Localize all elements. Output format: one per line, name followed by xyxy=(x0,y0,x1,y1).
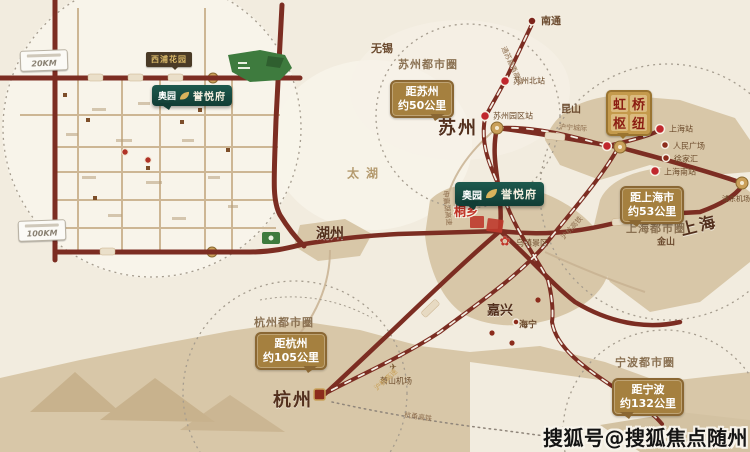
distance-badge-shanghai: 距上海市 约53公里 xyxy=(620,186,684,224)
wuzhen-scenic-label: 乌镇景区 xyxy=(516,238,548,249)
distance-line2: 约132公里 xyxy=(620,397,676,411)
project-name: 誉悦府 xyxy=(193,88,226,103)
leaf-icon xyxy=(485,188,498,200)
hongqiao-hub-badge: 虹 桥 枢 纽 xyxy=(606,90,652,136)
distance-line2: 约105公里 xyxy=(263,351,319,365)
inset-road-badge: 西浦花园 xyxy=(146,52,192,67)
station-shanghai-south-label: 上海南站 xyxy=(664,167,696,178)
sign-text-bar xyxy=(25,223,59,227)
inset-distance-sign-bottom: 100KM xyxy=(18,219,67,242)
distance-line1: 距宁波 xyxy=(620,383,676,397)
sign-distance: 20KM xyxy=(23,58,65,68)
station-renmin-square-label: 人民广场 xyxy=(673,141,705,152)
sign-text-bar xyxy=(27,53,61,57)
watermark-text: 搜狐号@搜狐焦点随州站 xyxy=(543,422,750,452)
distance-badge-suzhou: 距苏州 约50公里 xyxy=(390,80,454,118)
city-haining: 海宁 xyxy=(519,318,537,331)
leaf-icon xyxy=(179,91,190,101)
city-jiaxing: 嘉兴 xyxy=(487,300,513,319)
lake-taihu-label: 太湖 xyxy=(347,165,385,182)
project-brand: 奥园 xyxy=(462,187,482,202)
city-suzhou: 苏州 xyxy=(438,114,478,140)
inset-distance-sign-top: 20KM xyxy=(20,49,69,72)
hongqiao-char: 桥 xyxy=(630,95,647,112)
pudong-airport-label: 浦东机场 xyxy=(722,194,750,204)
badge-pointer xyxy=(628,220,647,234)
hangzhou-marker xyxy=(314,389,325,400)
metro-circle-suzhou-label: 苏州都市圈 xyxy=(398,56,458,72)
rail-label-huning: 沪宁城际 xyxy=(559,122,588,134)
station-suzhou-yuanqu-label: 苏州园区站 xyxy=(493,111,533,122)
station-xujiahui-label: 徐家汇 xyxy=(674,154,698,165)
project-badge-main: 奥园 誉悦府 xyxy=(455,182,544,206)
city-wuxi: 无锡 xyxy=(371,40,393,56)
sign-distance: 100KM xyxy=(21,228,63,238)
wuzhen-flower-icon: ✿ xyxy=(500,235,511,250)
hongqiao-char: 纽 xyxy=(630,114,647,131)
distance-badge-ningbo: 距宁波 约132公里 xyxy=(612,378,684,416)
location-map: 太湖 苏州 上海 杭州 嘉兴 湖州 无锡 南通 昆山 金山 海宁 桐乡 苏州都市… xyxy=(0,0,750,452)
hongqiao-char: 虹 xyxy=(611,95,628,112)
distance-line1: 距上海市 xyxy=(628,191,676,205)
project-badge-inset: 奥园 誉悦府 xyxy=(152,85,232,106)
city-jinshan: 金山 xyxy=(657,235,675,248)
city-huzhou: 湖州 xyxy=(316,223,344,243)
project-brand: 奥园 xyxy=(158,89,176,102)
distance-line2: 约50公里 xyxy=(398,99,446,113)
metro-circle-hangzhou-label: 杭州都市圈 xyxy=(254,314,314,330)
distance-badge-hangzhou: 距杭州 约105公里 xyxy=(255,332,327,370)
city-kunshan: 昆山 xyxy=(561,101,581,116)
city-hangzhou: 杭州 xyxy=(273,386,313,412)
distance-line1: 距杭州 xyxy=(263,337,319,351)
city-nantong: 南通 xyxy=(541,13,561,28)
project-name: 誉悦府 xyxy=(501,186,537,202)
inset-road-badge-label: 西浦花园 xyxy=(151,55,187,64)
metro-circle-ningbo-label: 宁波都市圈 xyxy=(615,354,675,370)
badge-pointer xyxy=(170,65,180,75)
badge-pointer xyxy=(617,133,629,145)
distance-line1: 距苏州 xyxy=(398,85,446,99)
distance-line2: 约53公里 xyxy=(628,205,676,219)
hongqiao-char: 枢 xyxy=(611,114,628,131)
station-shanghai-label: 上海站 xyxy=(669,124,693,135)
